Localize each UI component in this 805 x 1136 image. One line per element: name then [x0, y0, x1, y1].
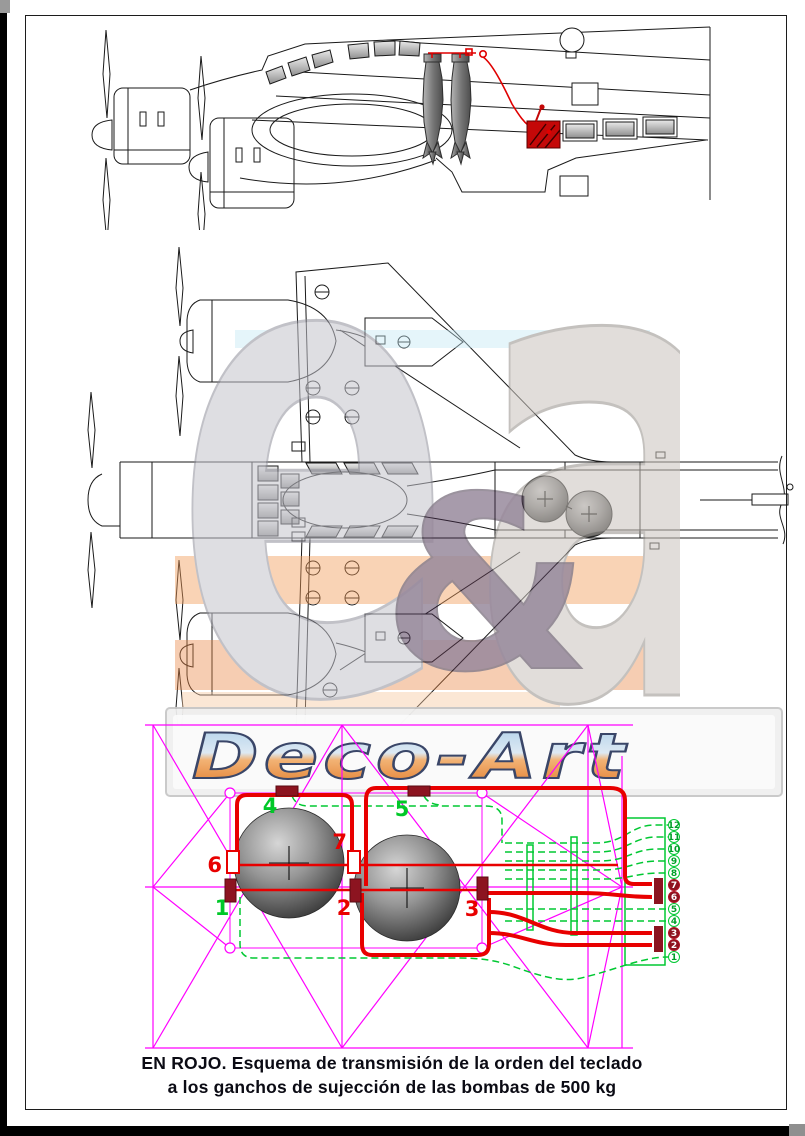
scanned-page: e a & Deco-Art [0, 0, 805, 1136]
scan-corner-bottom-right [789, 1124, 805, 1136]
page-border-frame [25, 15, 787, 1110]
scan-edge-bottom [0, 1126, 805, 1136]
scan-corner-top-left [0, 0, 10, 13]
scan-edge-left [0, 0, 7, 1128]
